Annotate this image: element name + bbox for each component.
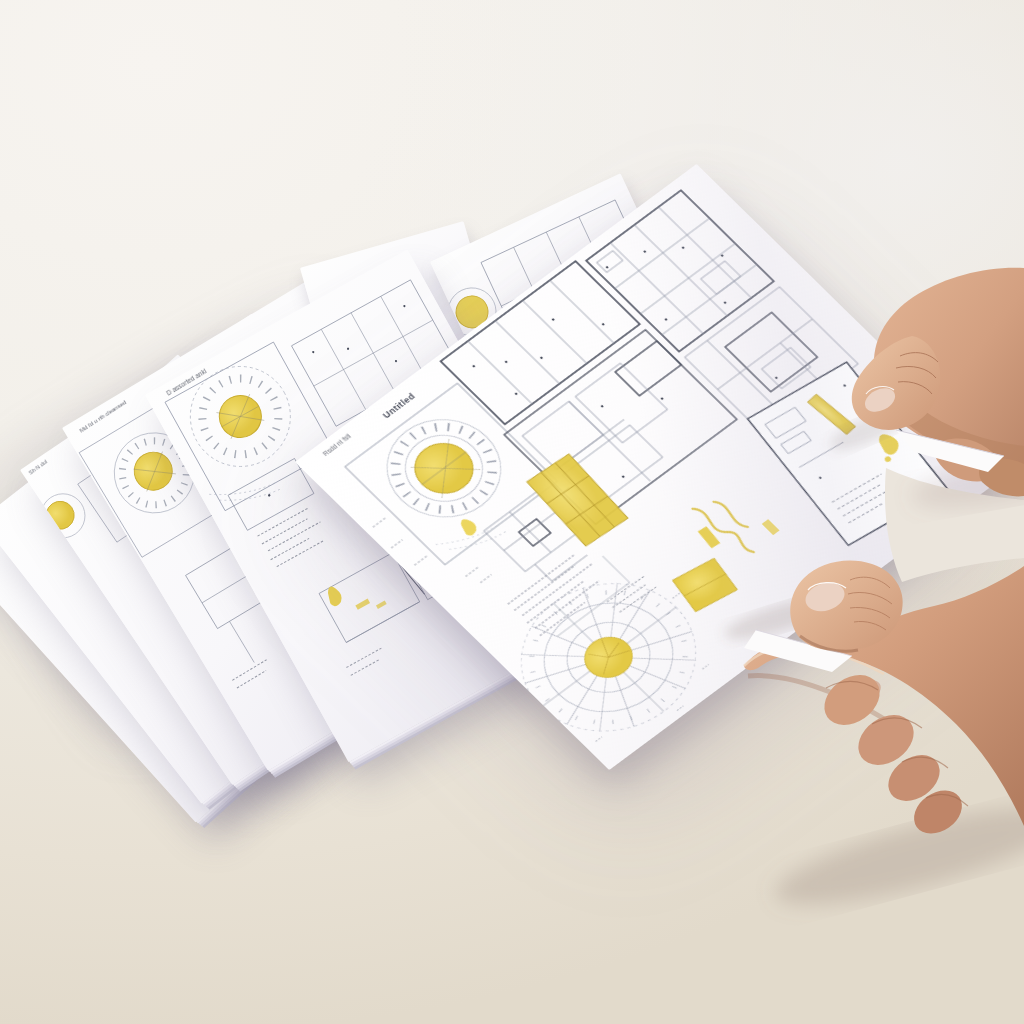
lower-hand-table-shadow [767, 788, 1024, 924]
right-hand-upper [852, 268, 1024, 497]
right-hand-lower [744, 560, 1024, 842]
hands-layer [0, 0, 1024, 1024]
photo-scene: Sh N dul Md fd u rth cleansed [0, 0, 1024, 1024]
